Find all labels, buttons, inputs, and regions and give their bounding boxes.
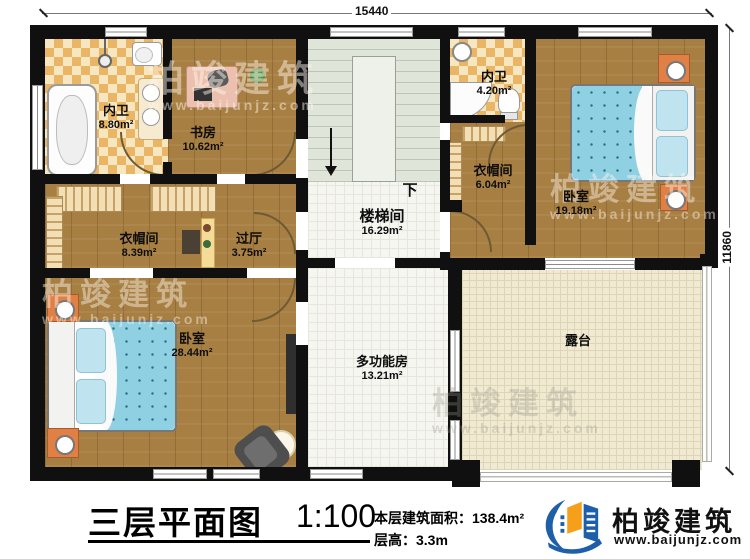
plan-area-value: 138.4m²	[472, 510, 524, 526]
tv	[286, 334, 296, 414]
plan-area-label: 本层建筑面积：	[374, 510, 472, 526]
dimension-top-value: 15440	[352, 4, 391, 18]
room-label-hallway: 过厅 3.75m²	[232, 232, 267, 260]
nightstand	[658, 54, 690, 83]
wall	[45, 268, 90, 278]
mattress	[107, 322, 175, 430]
stair-landing	[352, 56, 396, 182]
title-underline	[88, 540, 370, 543]
room-label-bath-second: 内卫 4.20m²	[477, 70, 512, 98]
wall	[150, 174, 217, 184]
wall	[153, 268, 247, 278]
window	[213, 469, 260, 479]
wall	[440, 39, 450, 123]
floor-plan-page: 内卫 8.80m² 书房 10.62m² 楼梯间 16.29m² 下 内卫 4.…	[0, 0, 750, 559]
window	[450, 330, 460, 392]
window	[32, 85, 43, 170]
wall	[450, 115, 505, 123]
window	[310, 469, 363, 479]
pillow	[656, 136, 688, 177]
window	[458, 27, 505, 37]
nightstand-lamp	[55, 300, 75, 320]
pillow	[656, 90, 688, 131]
window	[105, 27, 147, 37]
shower-hose	[104, 39, 106, 55]
plan-area-line: 本层建筑面积：138.4m²	[374, 508, 524, 528]
wall	[245, 174, 296, 184]
nightstand	[660, 184, 688, 211]
toilet-master	[132, 42, 162, 66]
headboard	[49, 322, 75, 430]
wall	[163, 39, 172, 139]
shower-head-icon	[98, 54, 112, 68]
terrace-railing	[702, 266, 712, 462]
stair-direction-line	[330, 128, 332, 168]
room-label-terrace: 露台	[565, 334, 591, 349]
toilet-bowl	[135, 47, 153, 63]
hall-cabinet	[182, 230, 200, 254]
wall	[296, 178, 308, 212]
room-label-cloak-large: 衣帽间 8.39m²	[119, 232, 158, 260]
wall	[395, 258, 448, 268]
stairs-down-label: 下	[402, 182, 417, 199]
logo-url-text: www.baijunjz.com	[614, 532, 742, 547]
room-label-study: 书房 10.62m²	[183, 126, 224, 154]
wall	[440, 200, 462, 212]
nightstand	[47, 294, 79, 322]
closet-rack	[46, 196, 63, 272]
plan-scale: 1:100	[296, 498, 376, 535]
nightstand	[47, 428, 79, 458]
vase-icon	[203, 224, 211, 232]
plant-icon	[250, 68, 265, 83]
room-label-stairwell: 楼梯间 16.29m²	[359, 208, 404, 238]
window	[578, 27, 652, 37]
closet-rack	[56, 186, 122, 212]
wall	[296, 39, 308, 139]
nightstand-lamp	[55, 435, 75, 455]
room-label-multi-room: 多功能房 13.21m²	[356, 355, 408, 383]
plan-title: 三层平面图	[88, 496, 263, 544]
terrace-pillar	[452, 460, 480, 487]
wall	[525, 39, 536, 245]
nightstand-lamp	[666, 61, 686, 81]
vase-icon	[203, 240, 211, 248]
room-label-cloak-small: 衣帽间 6.04m²	[473, 164, 512, 192]
wall	[163, 162, 172, 174]
terrace-railing	[480, 472, 672, 482]
stair-arrow-icon	[325, 166, 337, 182]
sink-icon	[142, 108, 160, 126]
pillow	[76, 379, 106, 424]
window	[153, 469, 207, 479]
window	[450, 420, 460, 460]
wall	[45, 174, 120, 184]
terrace-pillar	[672, 460, 700, 487]
window	[545, 260, 635, 269]
wall	[296, 345, 308, 467]
title-bar: 三层平面图 1:100 本层建筑面积：138.4m² 层高：3.3m 柏竣建筑 …	[0, 492, 750, 559]
bed	[47, 320, 177, 432]
baijun-logo-icon	[538, 496, 610, 554]
room-label-bedroom-main: 卧室 28.44m²	[172, 332, 213, 360]
closet-rack	[150, 186, 216, 212]
room-label-bedroom-right: 卧室 19.18m²	[556, 190, 597, 218]
sink-icon	[452, 42, 472, 62]
bathtub-basin	[56, 95, 88, 165]
bed	[570, 84, 696, 182]
nightstand-lamp	[666, 190, 686, 210]
window	[330, 27, 413, 37]
wall	[302, 258, 335, 268]
wall	[705, 25, 718, 266]
plan-height-value: 3.3m	[416, 532, 448, 548]
floor-terrace	[462, 270, 702, 470]
wall	[635, 258, 705, 270]
pillow	[76, 328, 106, 373]
room-label-bath-master: 内卫 8.80m²	[99, 104, 134, 132]
sink-icon	[142, 84, 160, 102]
plan-height-label: 层高：	[374, 532, 416, 548]
computer	[194, 88, 212, 101]
mattress	[572, 86, 642, 180]
bathtub	[47, 84, 97, 176]
plan-height-line: 层高：3.3m	[374, 530, 448, 550]
dimension-right-value: 11860	[720, 228, 734, 267]
